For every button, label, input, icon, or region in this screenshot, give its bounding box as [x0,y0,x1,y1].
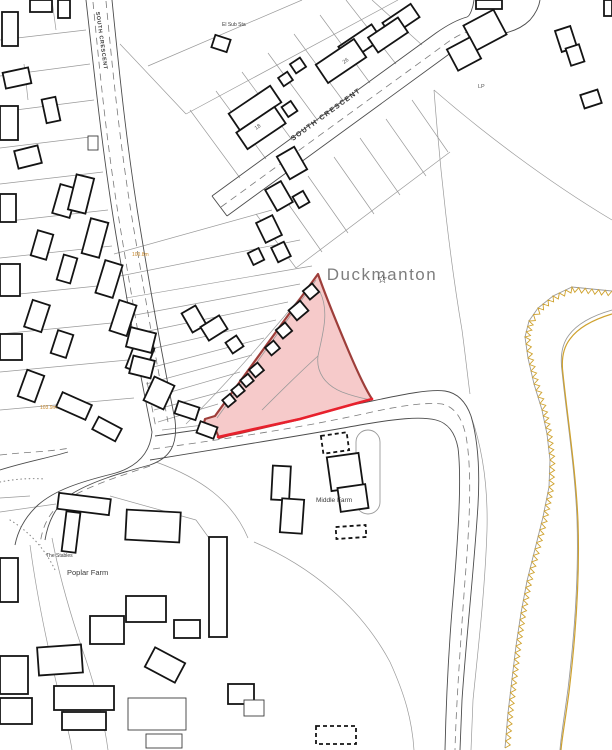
building [128,698,186,730]
building [90,616,124,644]
building [290,58,306,74]
map-canvas: Duckmanton ☆ SOUTH CRESCENT SOUTH CRESCE… [0,0,612,750]
building [56,392,92,420]
street-label-south-crescent: SOUTH CRESCENT [290,87,363,142]
lamp-post-label: LP [478,84,485,90]
building [125,510,180,543]
building [175,401,200,420]
building [68,174,94,213]
building [282,101,298,117]
building [57,255,78,284]
building [2,12,18,46]
elevation-label-south: 103.9m [40,405,57,411]
building [51,330,74,358]
building [37,644,83,675]
building [0,656,28,694]
building [126,596,166,622]
building [0,558,18,602]
building [580,90,601,109]
building [62,712,106,730]
building [336,525,367,539]
building [145,647,185,682]
building [126,327,156,353]
building [30,0,52,12]
building [271,466,291,501]
label-poplar-farm: Poplar Farm [67,568,108,577]
building [57,493,111,515]
building [225,335,243,353]
building [31,230,54,259]
building [476,0,502,9]
building [58,0,70,18]
building [54,686,114,710]
site-boundary [202,274,372,438]
building [3,67,32,88]
building [244,700,264,716]
tree-boundary-teeth [505,287,612,748]
building [82,218,109,257]
elevation-label-north: 100.8m [132,252,149,258]
building [0,106,18,140]
label-middle-farm: Middle Farm [316,497,352,504]
building [321,432,349,453]
building [209,537,227,637]
building [277,147,307,180]
building [0,264,20,296]
building [88,136,98,150]
building [174,620,200,638]
building [144,377,175,410]
building [146,734,182,748]
building [0,698,32,724]
building [24,300,50,332]
building [280,498,304,533]
building [211,35,230,52]
building [293,191,310,208]
label-the-stables: The Stables [46,553,73,559]
building [42,97,61,123]
building [18,370,44,402]
building [0,194,16,222]
site-area [202,274,372,438]
building [62,511,81,552]
building [248,248,264,265]
star-icon: ☆ [377,272,388,286]
building [14,145,42,168]
building [566,44,585,65]
building [316,726,356,744]
building [0,334,22,360]
building [604,0,612,16]
street-label-south-crescent-west: SOUTH CRESCENT [94,11,108,70]
building [92,417,122,442]
wooded-boundary [505,287,612,750]
building [95,260,122,298]
label-el-sub-sta: El Sub Sta [222,22,246,28]
site-location-map: Duckmanton ☆ SOUTH CRESCENT SOUTH CRESCE… [0,0,612,750]
